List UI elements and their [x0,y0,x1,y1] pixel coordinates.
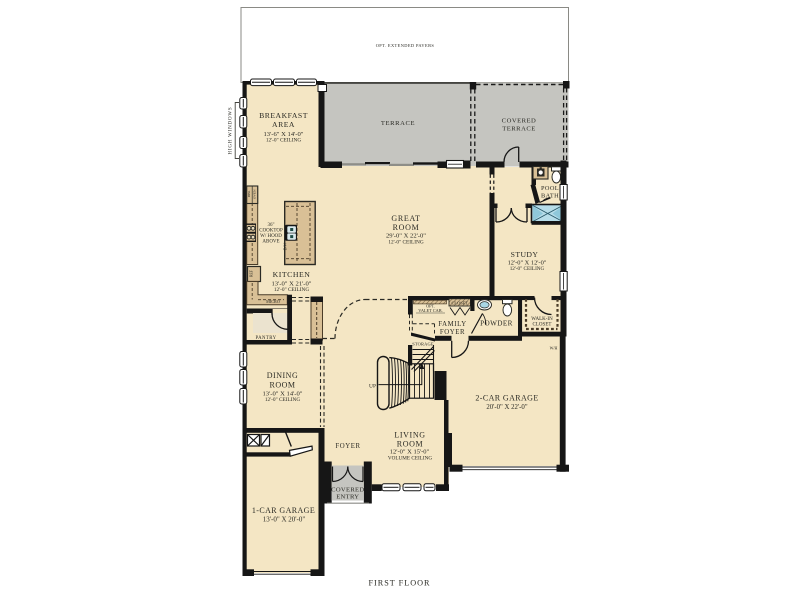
svg-text:MICRO: MICRO [266,299,280,304]
svg-text:CLOSET: CLOSET [533,323,552,328]
svg-text:STUDY: STUDY [511,250,539,259]
svg-text:FAMILY: FAMILY [438,321,466,328]
svg-text:HIGH WINDOWS: HIGH WINDOWS [229,107,234,155]
svg-text:TERRACE: TERRACE [502,126,536,133]
svg-text:ENTRY: ENTRY [336,494,359,501]
svg-text:LIVING: LIVING [394,431,425,440]
svg-text:PANTRY: PANTRY [256,336,277,341]
svg-text:COOKTOP: COOKTOP [259,229,283,234]
svg-text:12'-0" CEILING: 12'-0" CEILING [510,266,545,272]
svg-text:12'-0" CEILING: 12'-0" CEILING [388,240,424,246]
svg-text:DINING: DINING [267,371,298,380]
svg-text:36": 36" [267,223,274,228]
svg-text:2-CAR GARAGE: 2-CAR GARAGE [475,394,538,403]
svg-text:DBL: DBL [247,190,251,197]
svg-text:UP: UP [369,383,376,389]
svg-text:OVEN: OVEN [253,189,257,199]
svg-text:BREAKFAST: BREAKFAST [259,111,308,120]
svg-text:OPT. EXTENDED PAVERS: OPT. EXTENDED PAVERS [376,43,435,48]
svg-text:POWDER: POWDER [480,320,513,328]
svg-text:VALET CAB.: VALET CAB. [418,308,442,313]
svg-text:W/ HOOD: W/ HOOD [260,234,282,239]
svg-text:COVERED: COVERED [502,118,537,125]
svg-text:TERRACE: TERRACE [381,120,415,127]
svg-text:REF: REF [250,270,254,277]
svg-text:13'-0" X 20'-0": 13'-0" X 20'-0" [263,516,306,524]
svg-text:GREAT: GREAT [391,214,420,223]
svg-text:CLOSET: CLOSET [452,301,469,306]
svg-text:20'-0" X 22'-0": 20'-0" X 22'-0" [486,404,527,411]
svg-text:D/W: D/W [284,242,288,250]
svg-text:12'-0" X 15'-0": 12'-0" X 15'-0" [390,449,430,456]
svg-text:STORAGE: STORAGE [412,342,434,347]
svg-text:FOYER: FOYER [440,329,465,336]
svg-text:KITCHEN: KITCHEN [273,270,311,279]
svg-text:WALK-IN: WALK-IN [531,317,553,322]
svg-text:AREA: AREA [272,120,295,129]
svg-text:FIRST FLOOR: FIRST FLOOR [368,579,430,588]
svg-text:ABOVE: ABOVE [262,240,279,245]
svg-text:12'-0" CEILING: 12'-0" CEILING [266,138,302,144]
svg-text:ROOM: ROOM [397,440,423,449]
svg-text:ROOM: ROOM [269,381,295,390]
svg-text:VOLUME CEILING: VOLUME CEILING [388,456,432,462]
svg-text:12'-0" CEILING: 12'-0" CEILING [265,397,301,403]
svg-text:29'-0" X 22'-0": 29'-0" X 22'-0" [386,233,426,240]
svg-text:FOYER: FOYER [335,443,360,450]
svg-text:ROOM: ROOM [393,223,420,232]
svg-text:POOL: POOL [541,185,559,192]
svg-text:12'-0" CEILING: 12'-0" CEILING [274,287,310,293]
svg-text:COVERED: COVERED [331,487,364,494]
svg-text:1-CAR GARAGE: 1-CAR GARAGE [252,506,315,515]
svg-text:W/H: W/H [550,346,558,351]
